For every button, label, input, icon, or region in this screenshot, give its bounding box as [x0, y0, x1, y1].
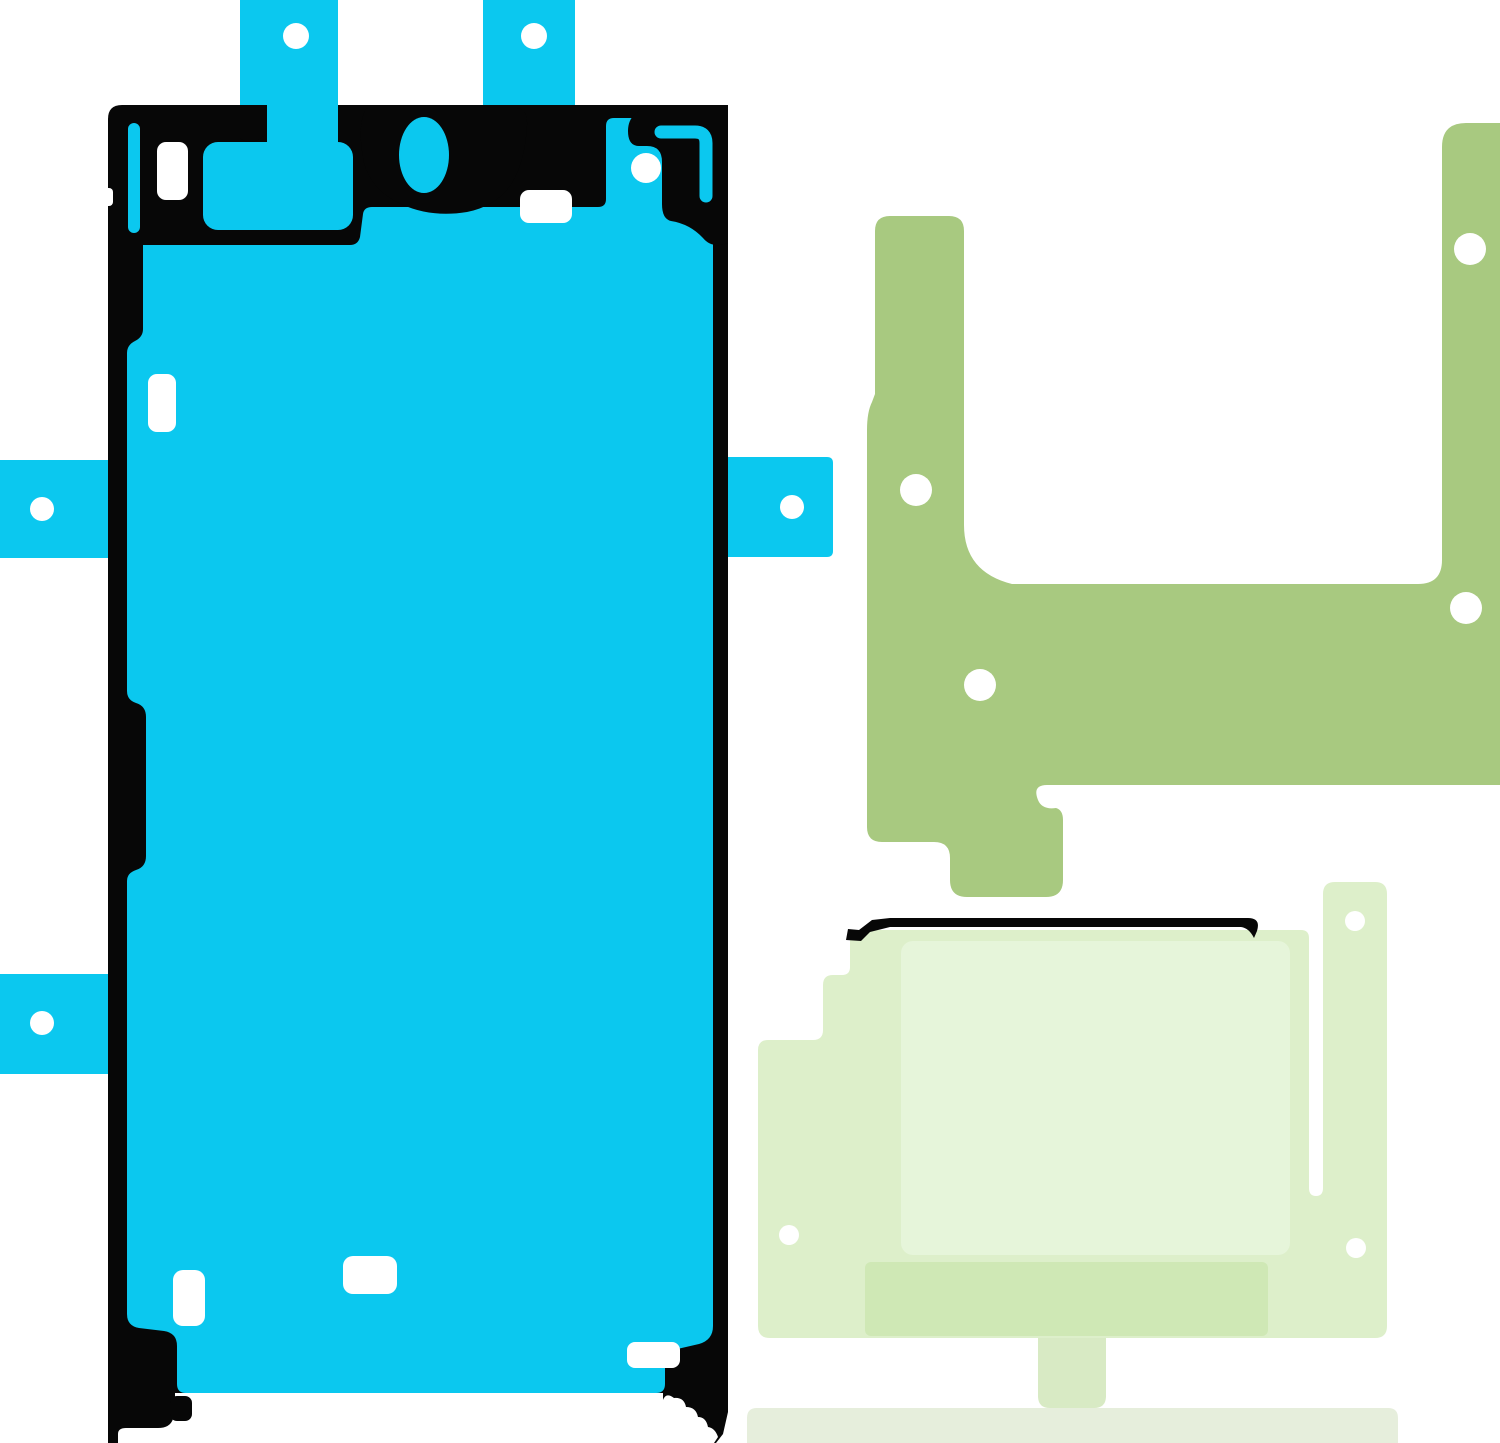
screen-hole-circle-top-right	[631, 153, 661, 183]
screen-hole-bottom-left	[173, 1270, 205, 1326]
screen-tab-hole-left-upper	[30, 497, 54, 521]
bottom-adhesive-strip	[747, 1408, 1398, 1443]
screen-bottom-left-knob-black	[170, 1396, 192, 1421]
screen-peninsula-cyan	[203, 142, 353, 230]
display-adhesive-inner-sheet	[901, 941, 1290, 1255]
frame-adhesive-olive	[867, 123, 1500, 897]
display-hole-left	[779, 1225, 799, 1245]
screen-hole-mid-top	[520, 190, 572, 223]
screen-tab-hole-top-right	[521, 23, 547, 49]
screen-interior-cyan	[127, 118, 713, 1393]
adhesive-kit-product-image	[0, 0, 1500, 1443]
screen-tab-hole-right	[780, 495, 804, 519]
frame-hole-left-arm	[900, 474, 932, 506]
screen-tab-left-lower-cyan	[0, 974, 112, 1074]
screen-tab-hole-top-left	[283, 23, 309, 49]
screen-hole-bottom-mid	[343, 1256, 397, 1294]
screen-tab-right-cyan	[713, 457, 833, 557]
screen-hole-left-mid	[148, 374, 176, 432]
screen-tab-left-upper-cyan	[0, 460, 112, 558]
frame-hole-bottom	[964, 669, 996, 701]
adhesive-kit-canvas	[0, 0, 1500, 1443]
display-hole-column-top	[1345, 911, 1365, 931]
screen-tab-top-right-cyan	[483, 0, 575, 108]
display-bottom-pull-tab	[1038, 1338, 1106, 1408]
display-hole-column-bottom	[1346, 1238, 1366, 1258]
frame-hole-right-arm	[1454, 233, 1486, 265]
frame-hole-right-lower	[1450, 592, 1482, 624]
screen-slot-cutout-cyan	[128, 123, 140, 233]
screen-bottom-white-area	[175, 1393, 663, 1443]
camera-cutout-cyan	[399, 117, 449, 193]
screen-tab-top-left-cyan	[240, 0, 338, 108]
screen-left-edge-notch	[103, 188, 113, 206]
screen-hole-bottom-right	[627, 1342, 680, 1368]
display-adhesive-dark-band	[865, 1262, 1268, 1336]
screen-under-tab-black-notch	[240, 105, 267, 142]
screen-hole-top-left	[157, 142, 188, 200]
screen-tab-hole-left-lower	[30, 1011, 54, 1035]
